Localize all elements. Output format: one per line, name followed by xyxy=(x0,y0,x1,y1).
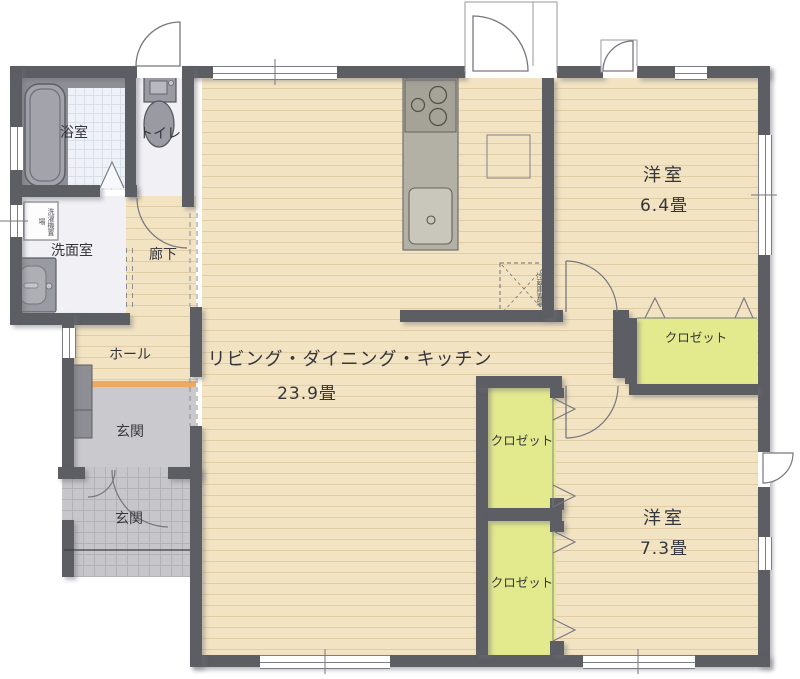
window-bedroom2-bottom xyxy=(583,655,695,669)
door-gap-bedroom2-right xyxy=(758,452,770,487)
room-label-washroom: 洗面室 xyxy=(32,243,112,259)
wall-closet3-stub-top xyxy=(550,521,564,532)
window-ldk-bottom xyxy=(260,655,390,669)
room-label-hall: ホール xyxy=(90,347,170,363)
wall-between-closets xyxy=(488,508,562,521)
wall-closet3-stub-bottom xyxy=(550,641,564,655)
closet-label-1: クロゼット xyxy=(636,331,756,345)
room-label-corridor: 廊下 xyxy=(132,247,194,263)
floor-plan: 浴室 トイレ 洗面室 廊下 ホール 玄関 玄関 リビング・ダイニング・キッチン … xyxy=(0,0,800,679)
room-size-bedroom1: 6.4畳 xyxy=(614,197,714,217)
back-door-gap xyxy=(466,66,556,78)
wall-genkan-east-2 xyxy=(190,426,202,470)
window-bedroom2-right xyxy=(758,537,772,570)
bedroom1-ext-door-arc xyxy=(603,41,633,71)
window-bathroom-left xyxy=(10,127,24,170)
back-door-arc xyxy=(473,16,528,71)
room-label-bedroom1: 洋室 xyxy=(612,166,716,187)
closet-label-2: クロゼット xyxy=(489,434,555,448)
room-label-bedroom2: 洋室 xyxy=(612,509,716,530)
wall-top-1 xyxy=(10,66,137,78)
window-washroom-left xyxy=(10,205,24,237)
wall-porch-left-stub xyxy=(62,520,74,577)
window-bedroom1-right xyxy=(758,135,772,255)
wall-closet2-stub-top xyxy=(550,388,564,398)
bedroom1-ext-door-frame xyxy=(601,40,637,72)
wall-porch-stub-left xyxy=(58,467,85,479)
room-size-ldk: 23.9畳 xyxy=(247,385,367,405)
closet-bedroom1 xyxy=(637,318,757,384)
bedroom1-ext-door-gap xyxy=(603,66,637,78)
toilet-ext-door-gap xyxy=(137,66,182,78)
wall-closets-top xyxy=(476,376,562,388)
room-label-entrance-hall: 玄関 xyxy=(100,424,160,440)
wall-top-3 xyxy=(557,66,603,78)
wall-toilet-bottom xyxy=(125,185,137,197)
back-door-frame xyxy=(465,2,557,72)
toilet-ext-door-arc xyxy=(136,22,180,66)
wall-closet1-left xyxy=(625,318,637,384)
wall-closet1-bottom xyxy=(629,384,758,395)
window-bedroom1-top xyxy=(675,66,707,80)
window-hall-left xyxy=(62,328,76,358)
room-label-ldk: リビング・ダイニング・キッチン xyxy=(195,350,505,371)
refrigerator-space-label: 冷蔵庫置場 xyxy=(504,266,544,312)
bathroom-top-strip xyxy=(66,78,128,88)
wall-bath-wash-divider xyxy=(22,185,100,197)
wall-left-upper xyxy=(10,66,22,320)
closet-label-3: クロゼット xyxy=(489,576,555,590)
window-ldk-top xyxy=(213,66,337,80)
washing-machine-space-label: 洗濯機置場 xyxy=(27,205,55,238)
room-label-bathroom: 浴室 xyxy=(44,125,104,141)
wall-closets-left xyxy=(476,378,488,655)
room-label-entrance-porch: 玄関 xyxy=(99,511,159,527)
room-label-toilet: トイレ xyxy=(129,126,191,142)
wall-ldk-west-lower xyxy=(190,470,202,667)
room-size-bedroom2: 7.3畳 xyxy=(614,540,714,560)
